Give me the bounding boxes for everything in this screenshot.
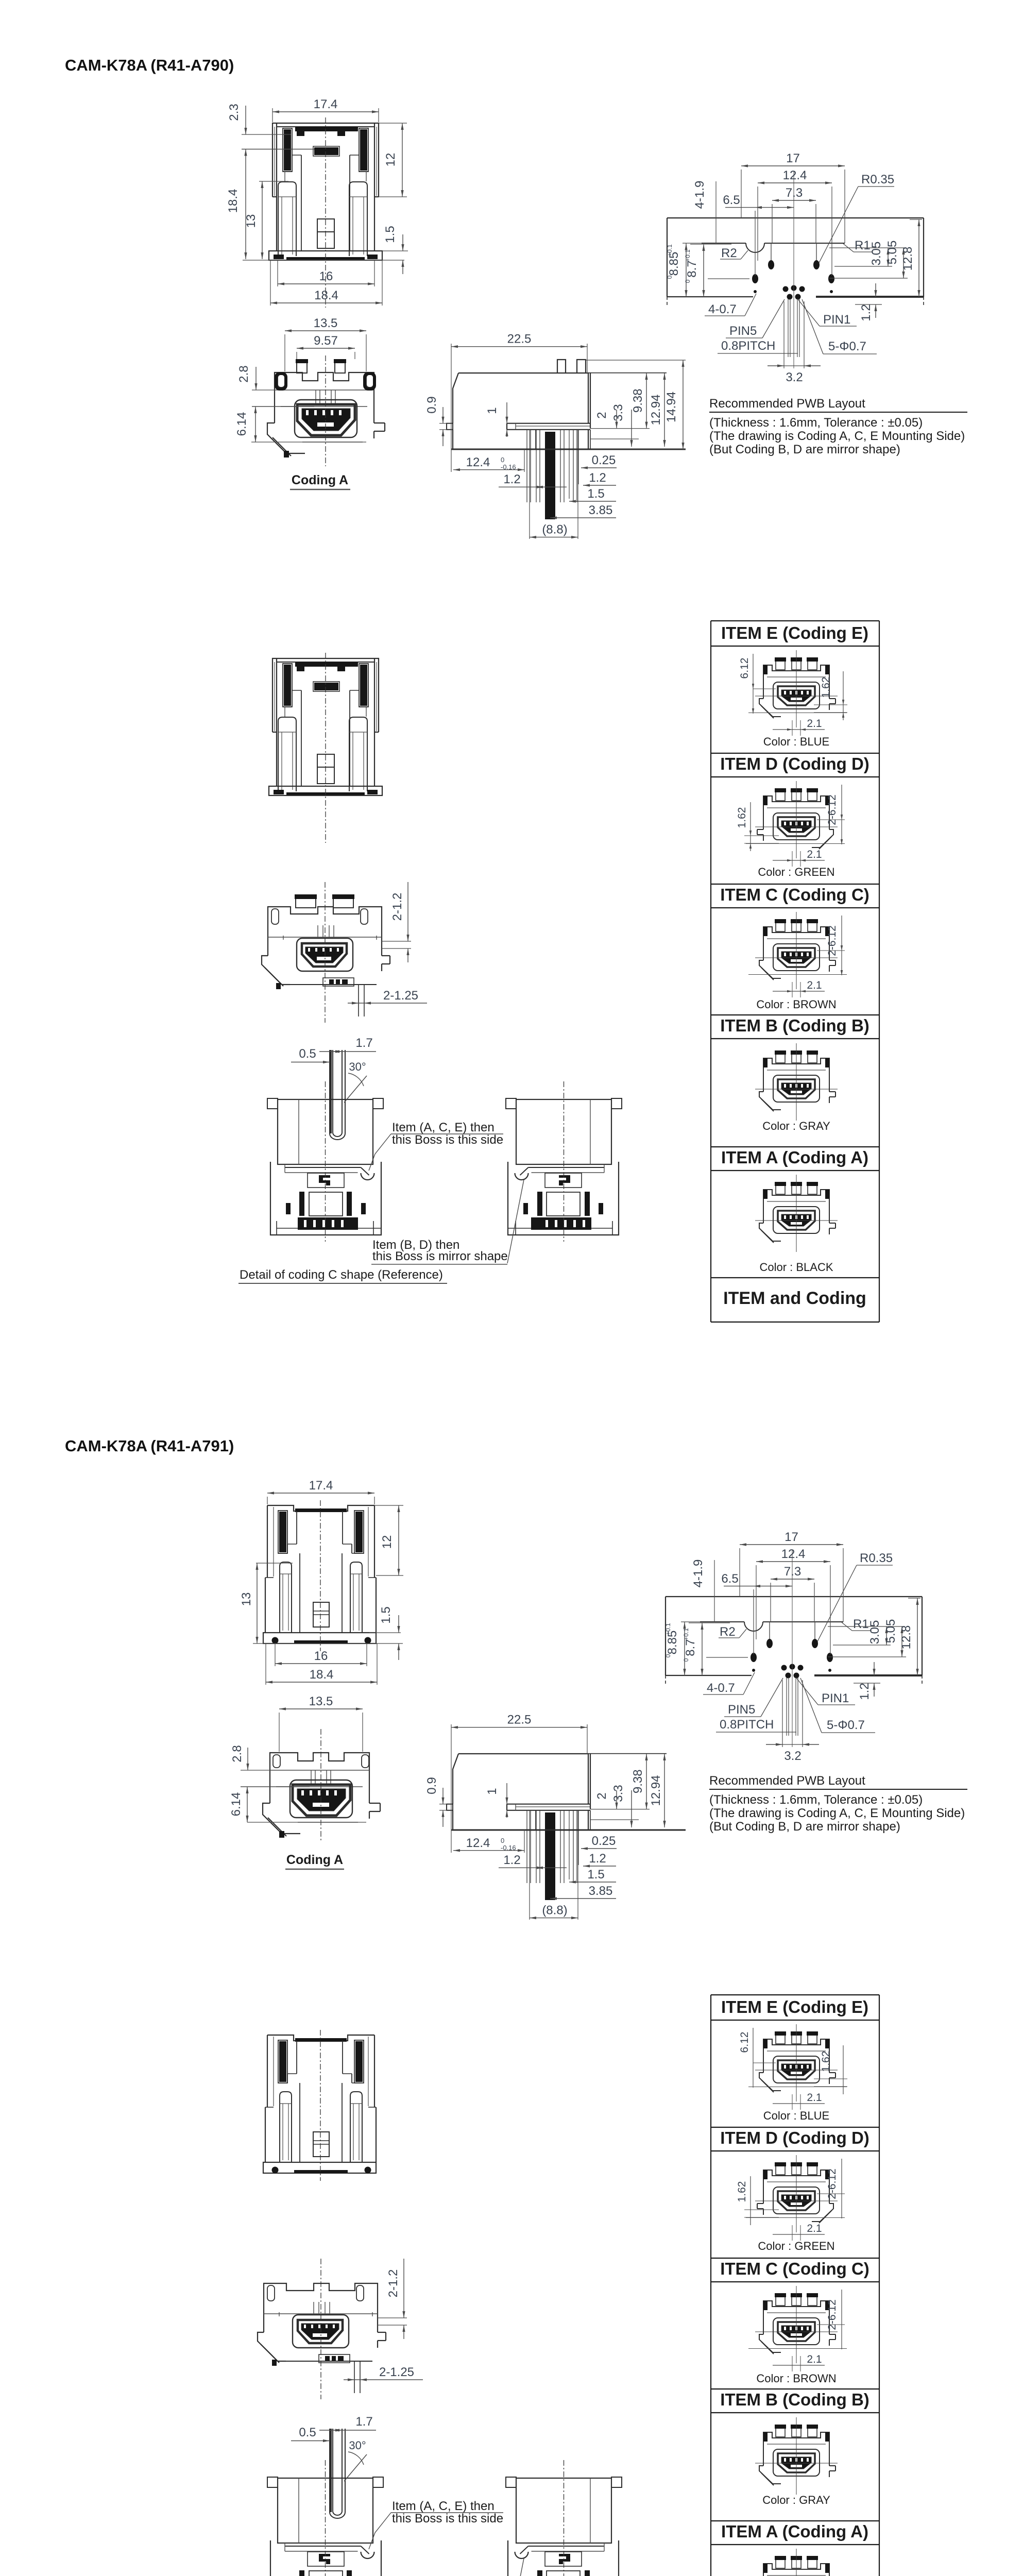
svg-text:17.4: 17.4 bbox=[314, 97, 338, 111]
svg-text:Color : GRAY: Color : GRAY bbox=[762, 2494, 830, 2506]
svg-text:this Boss is mirror shape: this Boss is mirror shape bbox=[372, 1249, 508, 1263]
svg-text:Color : BLACK: Color : BLACK bbox=[759, 1261, 833, 1274]
svg-text:Detail of coding C shape (Refe: Detail of coding C shape (Reference) bbox=[240, 1268, 443, 1282]
svg-text:ITEM D (Coding D): ITEM D (Coding D) bbox=[720, 754, 869, 773]
svg-text:Color : BROWN: Color : BROWN bbox=[756, 2372, 836, 2385]
svg-text:Color : BLUE: Color : BLUE bbox=[763, 2109, 829, 2122]
svg-text:12: 12 bbox=[384, 153, 398, 167]
svg-text:this Boss is this side: this Boss is this side bbox=[392, 2512, 503, 2526]
svg-text:Item (A, C, E) then: Item (A, C, E) then bbox=[392, 2499, 495, 2513]
svg-text:2.1: 2.1 bbox=[807, 2092, 822, 2104]
svg-text:CAM-K78A (R41-A791): CAM-K78A (R41-A791) bbox=[65, 1437, 234, 1455]
svg-text:30°: 30° bbox=[349, 2439, 366, 2452]
svg-text:ITEM B (Coding B): ITEM B (Coding B) bbox=[720, 2390, 869, 2409]
svg-text:6.14: 6.14 bbox=[229, 1792, 243, 1817]
svg-text:Color : GREEN: Color : GREEN bbox=[758, 2240, 834, 2252]
svg-text:2-6.12: 2-6.12 bbox=[826, 794, 838, 825]
svg-text:9.57: 9.57 bbox=[314, 334, 338, 348]
svg-text:2.8: 2.8 bbox=[230, 1745, 244, 1762]
svg-text:2.1: 2.1 bbox=[807, 849, 822, 860]
svg-text:13: 13 bbox=[240, 1592, 253, 1606]
svg-text:ITEM B (Coding B): ITEM B (Coding B) bbox=[720, 1016, 869, 1035]
svg-text:6.12: 6.12 bbox=[739, 2032, 751, 2053]
svg-text:Coding A: Coding A bbox=[292, 473, 348, 487]
svg-text:6.14: 6.14 bbox=[235, 412, 249, 436]
svg-text:1.7: 1.7 bbox=[355, 2415, 372, 2429]
svg-text:13.5: 13.5 bbox=[309, 1694, 333, 1708]
svg-text:ITEM A (Coding A): ITEM A (Coding A) bbox=[721, 1148, 868, 1167]
svg-text:13: 13 bbox=[244, 214, 258, 228]
svg-text:ITEM and Coding: ITEM and Coding bbox=[723, 1289, 866, 1308]
svg-text:1.7: 1.7 bbox=[355, 1036, 372, 1050]
svg-text:ITEM D (Coding D): ITEM D (Coding D) bbox=[720, 2128, 869, 2147]
svg-text:1.5: 1.5 bbox=[383, 226, 397, 243]
svg-text:ITEM E (Coding E): ITEM E (Coding E) bbox=[721, 623, 868, 642]
svg-text:1.62: 1.62 bbox=[736, 2181, 748, 2202]
svg-text:1.62: 1.62 bbox=[736, 807, 748, 828]
svg-text:2.3: 2.3 bbox=[227, 104, 241, 121]
svg-text:12: 12 bbox=[380, 1535, 394, 1549]
svg-text:2.1: 2.1 bbox=[807, 979, 822, 991]
svg-text:0.5: 0.5 bbox=[299, 2426, 316, 2439]
svg-text:13.5: 13.5 bbox=[314, 316, 338, 330]
svg-text:1.5: 1.5 bbox=[379, 1606, 393, 1623]
svg-text:30°: 30° bbox=[349, 1060, 366, 1073]
svg-text:18.4: 18.4 bbox=[226, 189, 240, 213]
svg-text:2-6.12: 2-6.12 bbox=[826, 2168, 838, 2199]
svg-text:16: 16 bbox=[314, 1649, 328, 1663]
svg-text:Coding A: Coding A bbox=[286, 1853, 343, 1867]
svg-text:ITEM A (Coding A): ITEM A (Coding A) bbox=[721, 2522, 868, 2541]
svg-text:2.1: 2.1 bbox=[807, 2353, 822, 2365]
svg-text:Color : BROWN: Color : BROWN bbox=[756, 998, 836, 1011]
svg-text:ITEM C (Coding C): ITEM C (Coding C) bbox=[720, 2259, 869, 2278]
svg-text:16: 16 bbox=[319, 269, 333, 283]
svg-text:2-6.12: 2-6.12 bbox=[826, 925, 838, 956]
svg-text:1.62: 1.62 bbox=[820, 2051, 832, 2072]
svg-text:0.5: 0.5 bbox=[299, 1047, 316, 1061]
svg-text:2-6.12: 2-6.12 bbox=[826, 2299, 838, 2330]
svg-text:2.1: 2.1 bbox=[807, 718, 822, 730]
svg-text:18.4: 18.4 bbox=[314, 289, 338, 302]
svg-text:1.62: 1.62 bbox=[820, 677, 832, 698]
svg-text:CAM-K78A (R41-A790): CAM-K78A (R41-A790) bbox=[65, 56, 234, 74]
svg-text:17.4: 17.4 bbox=[309, 1479, 333, 1493]
svg-text:this Boss is this side: this Boss is this side bbox=[392, 1133, 503, 1147]
svg-text:Color : GRAY: Color : GRAY bbox=[762, 1120, 830, 1132]
svg-text:18.4: 18.4 bbox=[310, 1668, 334, 1682]
svg-text:6.12: 6.12 bbox=[739, 658, 751, 679]
svg-text:Color : GREEN: Color : GREEN bbox=[758, 866, 834, 878]
svg-text:ITEM E (Coding E): ITEM E (Coding E) bbox=[721, 1997, 868, 2016]
svg-text:ITEM C (Coding C): ITEM C (Coding C) bbox=[720, 885, 869, 904]
svg-text:Item (A, C, E) then: Item (A, C, E) then bbox=[392, 1121, 495, 1134]
svg-text:Color : BLUE: Color : BLUE bbox=[763, 735, 829, 748]
svg-text:2.1: 2.1 bbox=[807, 2223, 822, 2234]
svg-text:14.94: 14.94 bbox=[664, 392, 678, 422]
svg-text:2.8: 2.8 bbox=[237, 365, 251, 382]
